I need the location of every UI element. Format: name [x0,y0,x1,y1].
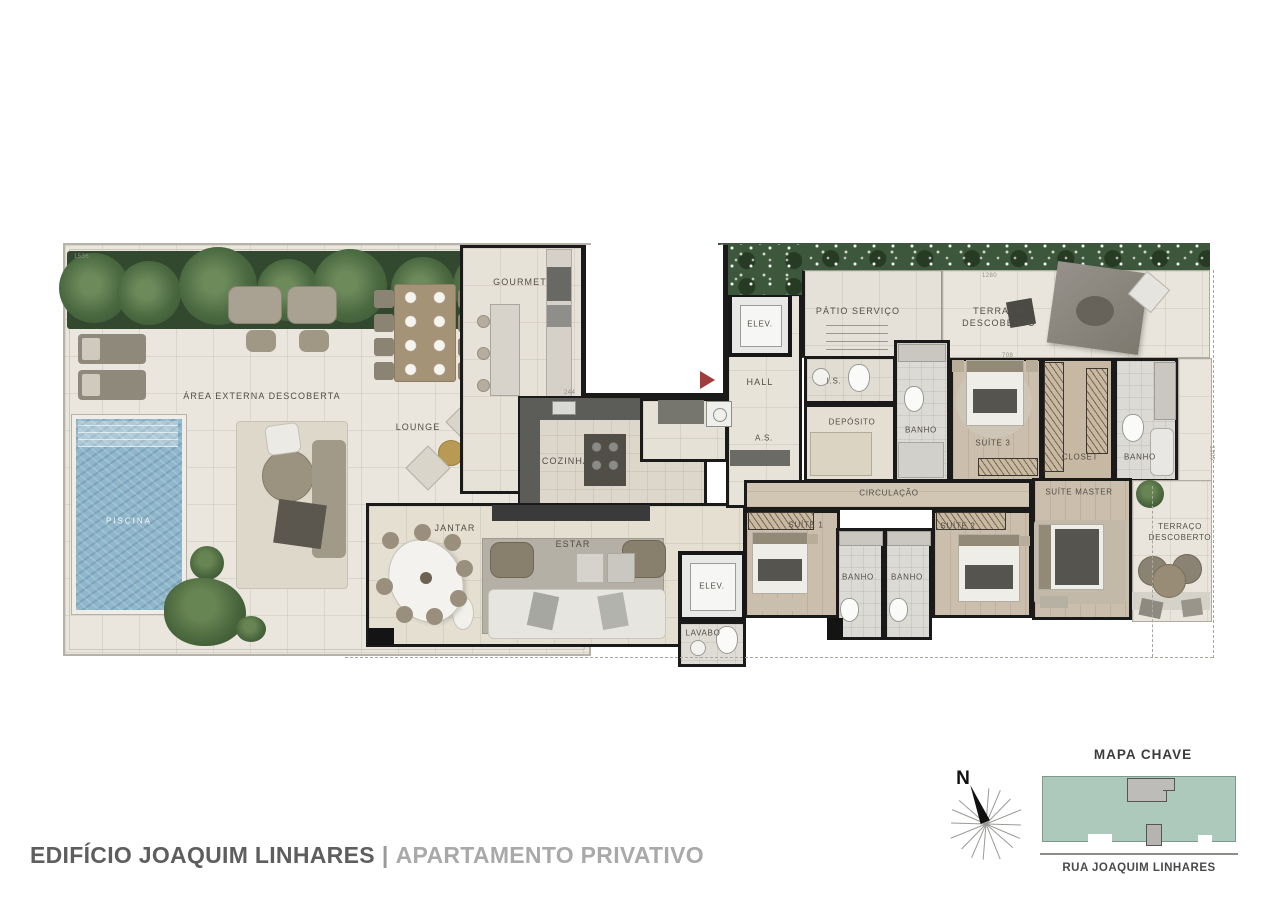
room-label-banho2: BANHO [891,573,923,582]
street-line [1040,853,1238,855]
washing-machine [706,401,732,427]
dining-chair [374,290,394,308]
room-label-patio-servico: PÁTIO SERVIÇO [816,306,900,316]
room-label-area-externa: ÁREA EXTERNA DESCOBERTA [183,391,341,401]
projection-line [1213,270,1214,658]
ottoman [299,330,329,352]
appliance [547,305,571,327]
pool [72,415,186,614]
room-label-is: I.S. [827,377,842,386]
coffee-table [607,553,635,583]
outdoor-dining-table [394,284,456,382]
dining-chair [414,524,431,541]
projection-line [1152,486,1153,657]
map-key-title: MAPA CHAVE [1094,747,1192,762]
kitchen-island-cooktop [584,434,626,486]
room-label-suite3: SUÍTE 3 [975,439,1010,448]
bar-stool [477,315,490,328]
bed-suite2 [958,534,1020,602]
room-label-suite2: SUÍTE 2 [940,522,975,531]
title-separator: | [382,842,389,868]
toilet [848,364,870,392]
bed-suite3 [966,360,1024,426]
dining-chair [376,578,393,595]
dining-chair [456,560,473,577]
room-label-estar: ESTAR [556,539,591,549]
room-label-hall: HALL [747,377,774,387]
room-label-elev-bottom: ELEV. [699,582,724,591]
sun-lounger [78,334,146,364]
dining-chair [374,338,394,356]
entrance-arrow-icon [700,371,715,389]
sun-lounger [78,370,146,400]
compass-rose-icon: N [936,768,1036,872]
sofa [488,589,666,639]
compass-north-letter: N [956,768,970,789]
wardrobe [978,458,1038,476]
bath-counter [887,531,931,546]
plant-icon [1136,480,1164,508]
bar-stool [477,347,490,360]
laundry-counter [658,400,704,424]
kitchen-counter [520,420,540,506]
palm-tree-icon [117,261,181,325]
dining-chair [444,534,461,551]
bar-stool [477,379,490,392]
nightstand [1026,360,1038,372]
site-plan-core [1146,824,1162,846]
service-counter [730,450,790,466]
room-label-cozinha: COZINHA [542,456,590,466]
room-label-jantar: JANTAR [435,523,476,533]
dining-chair [382,532,399,549]
room-label-gourmet: GOURMET [493,277,547,287]
shaft [827,618,843,640]
page-title: EDIFÍCIO JOAQUIM LINHARES|APARTAMENTO PR… [30,842,704,869]
tv-console [492,505,650,521]
pouf [1181,598,1203,618]
shrub-icon [190,546,224,580]
room-label-suite1: SUÍTE 1 [788,521,823,530]
dining-chair [426,608,443,625]
bath-counter [898,344,946,362]
tarp-cushion [1076,296,1114,326]
outdoor-armchair [287,286,337,324]
site-plan-notch [1198,835,1212,844]
room-label-elev-top: ELEV. [747,320,772,329]
building-name: EDIFÍCIO JOAQUIM LINHARES [30,842,375,868]
floor-plan-page: PISCINA ÁREA EXTERNA DESCOBERTA LOUNGE G… [0,0,1280,905]
room-label-deposito: DEPÓSITO [829,418,876,427]
outdoor-armchair [228,286,282,324]
garden-patch [728,245,802,295]
coffee-table [576,553,604,583]
dining-chair [374,362,394,380]
armchair [490,542,534,578]
storage-shelf [810,432,872,476]
shaft [368,628,394,645]
nightstand [1020,536,1030,546]
desk [752,598,800,611]
toilet [889,598,908,622]
site-plan-unit-highlight [1127,778,1167,802]
room-label-piscina: PISCINA [106,517,152,526]
bed-suite-master [1038,524,1104,590]
terraco-right-strip [1178,358,1212,482]
room-label-banho1: BANHO [842,573,874,582]
dimension-label: 1205 [1208,446,1214,461]
room-label-lavabo: LAVABO [685,629,720,638]
room-label-circulacao: CIRCULAÇÃO [859,489,918,498]
shrub-icon [164,578,246,646]
street-name: RUA JOAQUIM LINHARES [1062,862,1215,874]
gourmet-island [490,304,520,396]
lounge-daybed-dark [273,499,327,549]
bath-counter [1154,362,1176,420]
pool-steps [78,421,178,447]
room-label-suite-master: SUÍTE MASTER [1045,488,1113,497]
toilet [904,386,924,412]
bed-suite1 [752,532,808,594]
terrace-table [1152,564,1186,598]
site-plan-notch [1088,834,1112,844]
dimension-label: 244 [564,390,575,396]
room-label-banho-s3: BANHO [905,426,937,435]
dining-chair [374,314,394,332]
sink [690,640,706,656]
room-label-banho-master: BANHO [1124,453,1156,462]
room-label-as: A.S. [755,434,773,443]
dining-chair [450,590,467,607]
kitchen-sink [552,401,576,415]
nightstand [952,360,964,372]
lounge-chair [264,422,302,456]
ottoman [246,330,276,352]
dining-chair [396,606,413,623]
nightstand [808,534,818,544]
round-daybed [262,450,314,502]
site-plan-unit-ext [1163,778,1175,791]
bath-counter [839,531,883,546]
appliance [547,267,571,301]
bench [1040,596,1068,608]
clotheslines [826,324,888,358]
projection-line [345,657,1213,658]
dimension-label: 708 [1002,353,1013,359]
unit-type: APARTAMENTO PRIVATIVO [396,842,704,868]
room-label-lounge: LOUNGE [396,422,441,432]
shower [898,442,944,478]
dimension-label: 1280 [982,273,997,279]
toilet [1122,414,1144,442]
room-label-terraco-right: TERRAÇO DESCOBERTO [1144,522,1216,544]
table-centerpiece [420,572,432,584]
sofa-throw [597,592,629,630]
shrub-icon [236,616,266,642]
room-label-terraco-top: TERRAÇO DESCOBERTO [954,305,1044,329]
wardrobe [1086,368,1108,454]
room-label-closet: CLOSET [1062,453,1098,462]
dimension-label: 1536 [74,254,89,260]
